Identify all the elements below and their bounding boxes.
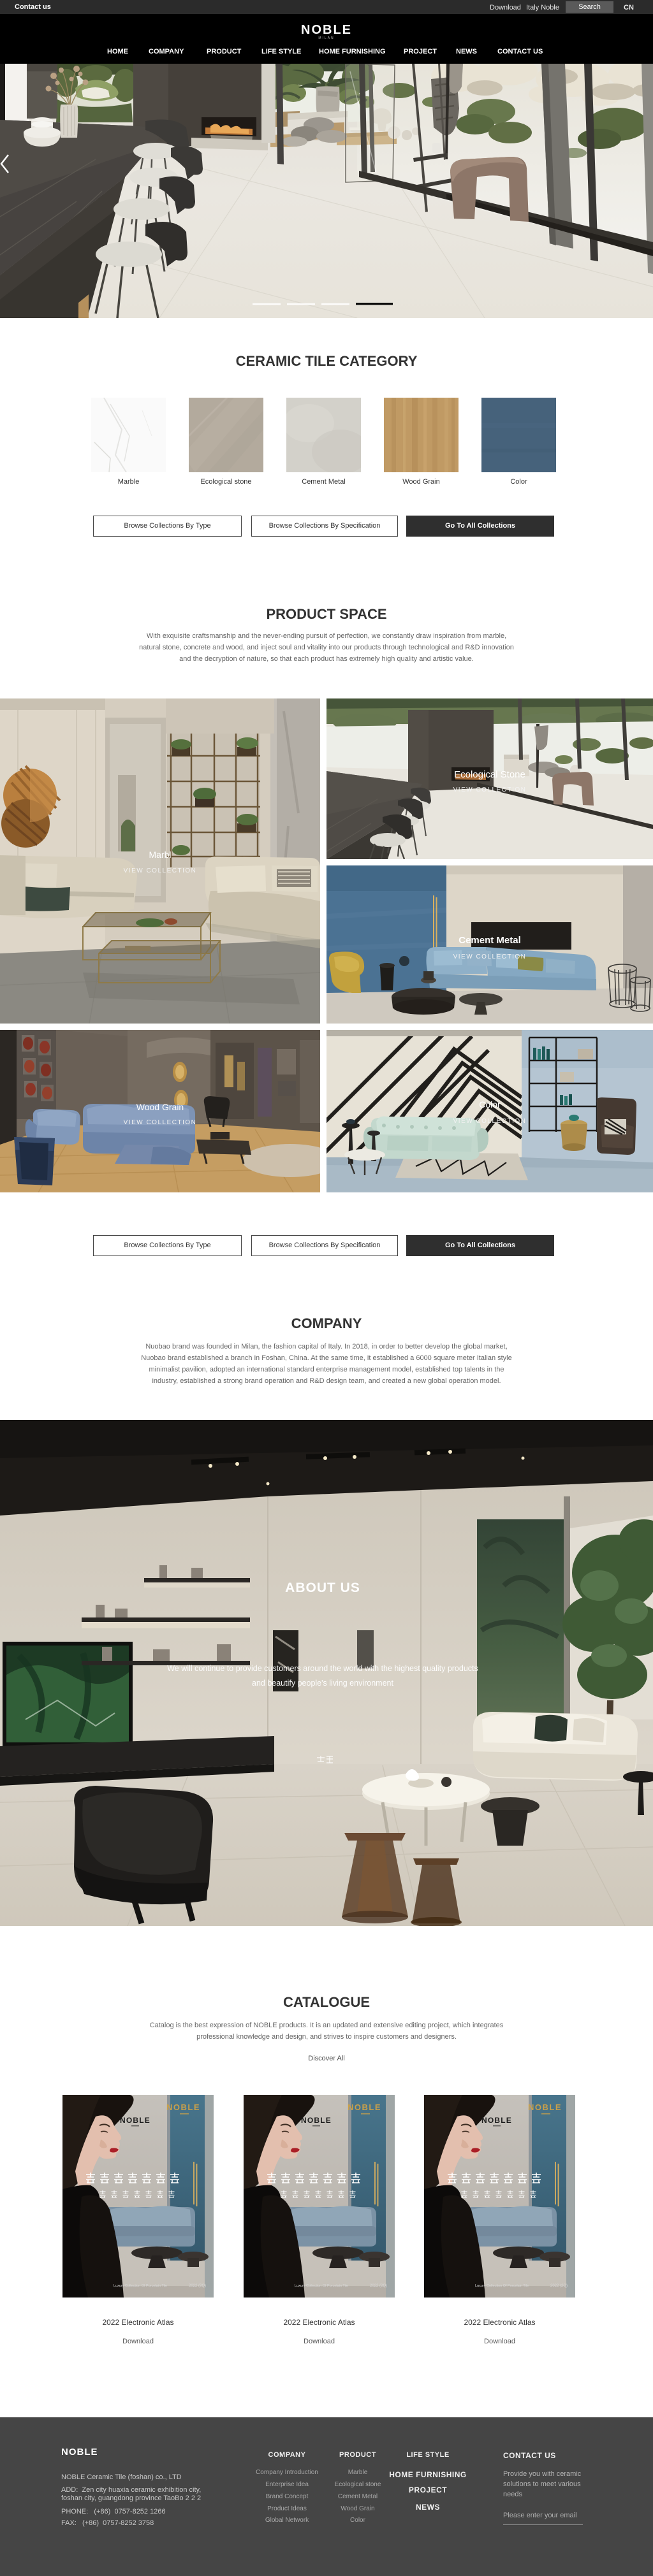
svg-text:and beautify people's living e: and beautify people's living environment <box>252 1679 393 1688</box>
svg-text:VIEW COLLECTION: VIEW COLLECTION <box>453 953 527 960</box>
svg-text:ABOUT US: ABOUT US <box>285 1581 360 1595</box>
svg-text:VIEW COLLECTION: VIEW COLLECTION <box>124 867 197 874</box>
svg-text:Cement Metal: Cement Metal <box>459 935 521 946</box>
svg-text:VIEW COLLECTION: VIEW COLLECTION <box>124 1119 197 1126</box>
svg-text:Ecological Stone: Ecological Stone <box>454 769 525 780</box>
svg-text:VIEW COLLECTION: VIEW COLLECTION <box>453 1118 527 1125</box>
svg-text:VIEW COLLECTION: VIEW COLLECTION <box>453 786 527 793</box>
svg-text:Color: Color <box>479 1099 501 1110</box>
svg-text:Wood Grain: Wood Grain <box>136 1102 184 1112</box>
svg-text:Marbl: Marbl <box>149 850 171 860</box>
svg-text:We will continue to provide cu: We will continue to provide customers ar… <box>167 1664 478 1673</box>
